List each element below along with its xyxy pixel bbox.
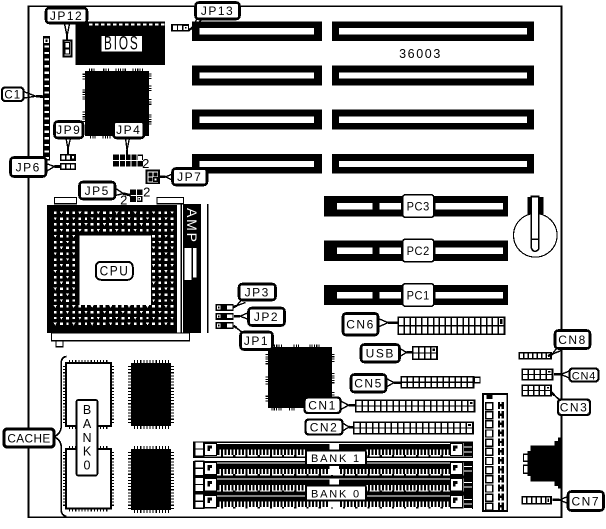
svg-text:PC1: PC1	[407, 290, 430, 302]
svg-text:CN6: CN6	[346, 318, 375, 332]
svg-text:N: N	[82, 431, 91, 445]
svg-text:JP9: JP9	[56, 123, 81, 137]
svg-text:A: A	[83, 417, 92, 431]
svg-text:USB: USB	[366, 347, 395, 361]
svg-text:CN1: CN1	[308, 399, 337, 413]
svg-text:PC3: PC3	[407, 201, 430, 213]
svg-text:BIOS: BIOS	[104, 34, 140, 54]
svg-text:CACHE: CACHE	[7, 431, 50, 445]
svg-text:JP6: JP6	[16, 160, 41, 174]
svg-text:CN2: CN2	[310, 420, 339, 434]
svg-text:JP13: JP13	[201, 4, 234, 18]
svg-text:JP5: JP5	[85, 184, 110, 198]
svg-text:CN8: CN8	[558, 333, 587, 347]
svg-text:0: 0	[84, 459, 91, 473]
svg-text:CN3: CN3	[560, 401, 589, 415]
svg-text:JP2: JP2	[254, 310, 279, 324]
svg-text:K: K	[83, 445, 92, 459]
svg-text:C1: C1	[4, 90, 21, 102]
svg-text:B: B	[83, 403, 91, 417]
svg-text:AMP: AMP	[184, 208, 200, 244]
svg-text:36003: 36003	[399, 47, 442, 61]
svg-text:BANK 0: BANK 0	[311, 488, 361, 500]
svg-text:PC2: PC2	[407, 246, 430, 258]
svg-text:2: 2	[142, 156, 149, 171]
svg-text:BANK 1: BANK 1	[311, 453, 361, 465]
svg-text:JP1: JP1	[244, 334, 269, 348]
svg-text:JP3: JP3	[245, 285, 270, 299]
svg-text:JP4: JP4	[116, 123, 141, 137]
svg-text:JP7: JP7	[177, 170, 202, 184]
svg-text:JP12: JP12	[50, 9, 83, 23]
svg-text:2: 2	[143, 185, 150, 200]
svg-text:CPU: CPU	[100, 263, 130, 279]
svg-text:CN5: CN5	[354, 377, 383, 391]
svg-text:CN7: CN7	[571, 494, 600, 508]
svg-text:CN4: CN4	[572, 370, 596, 382]
